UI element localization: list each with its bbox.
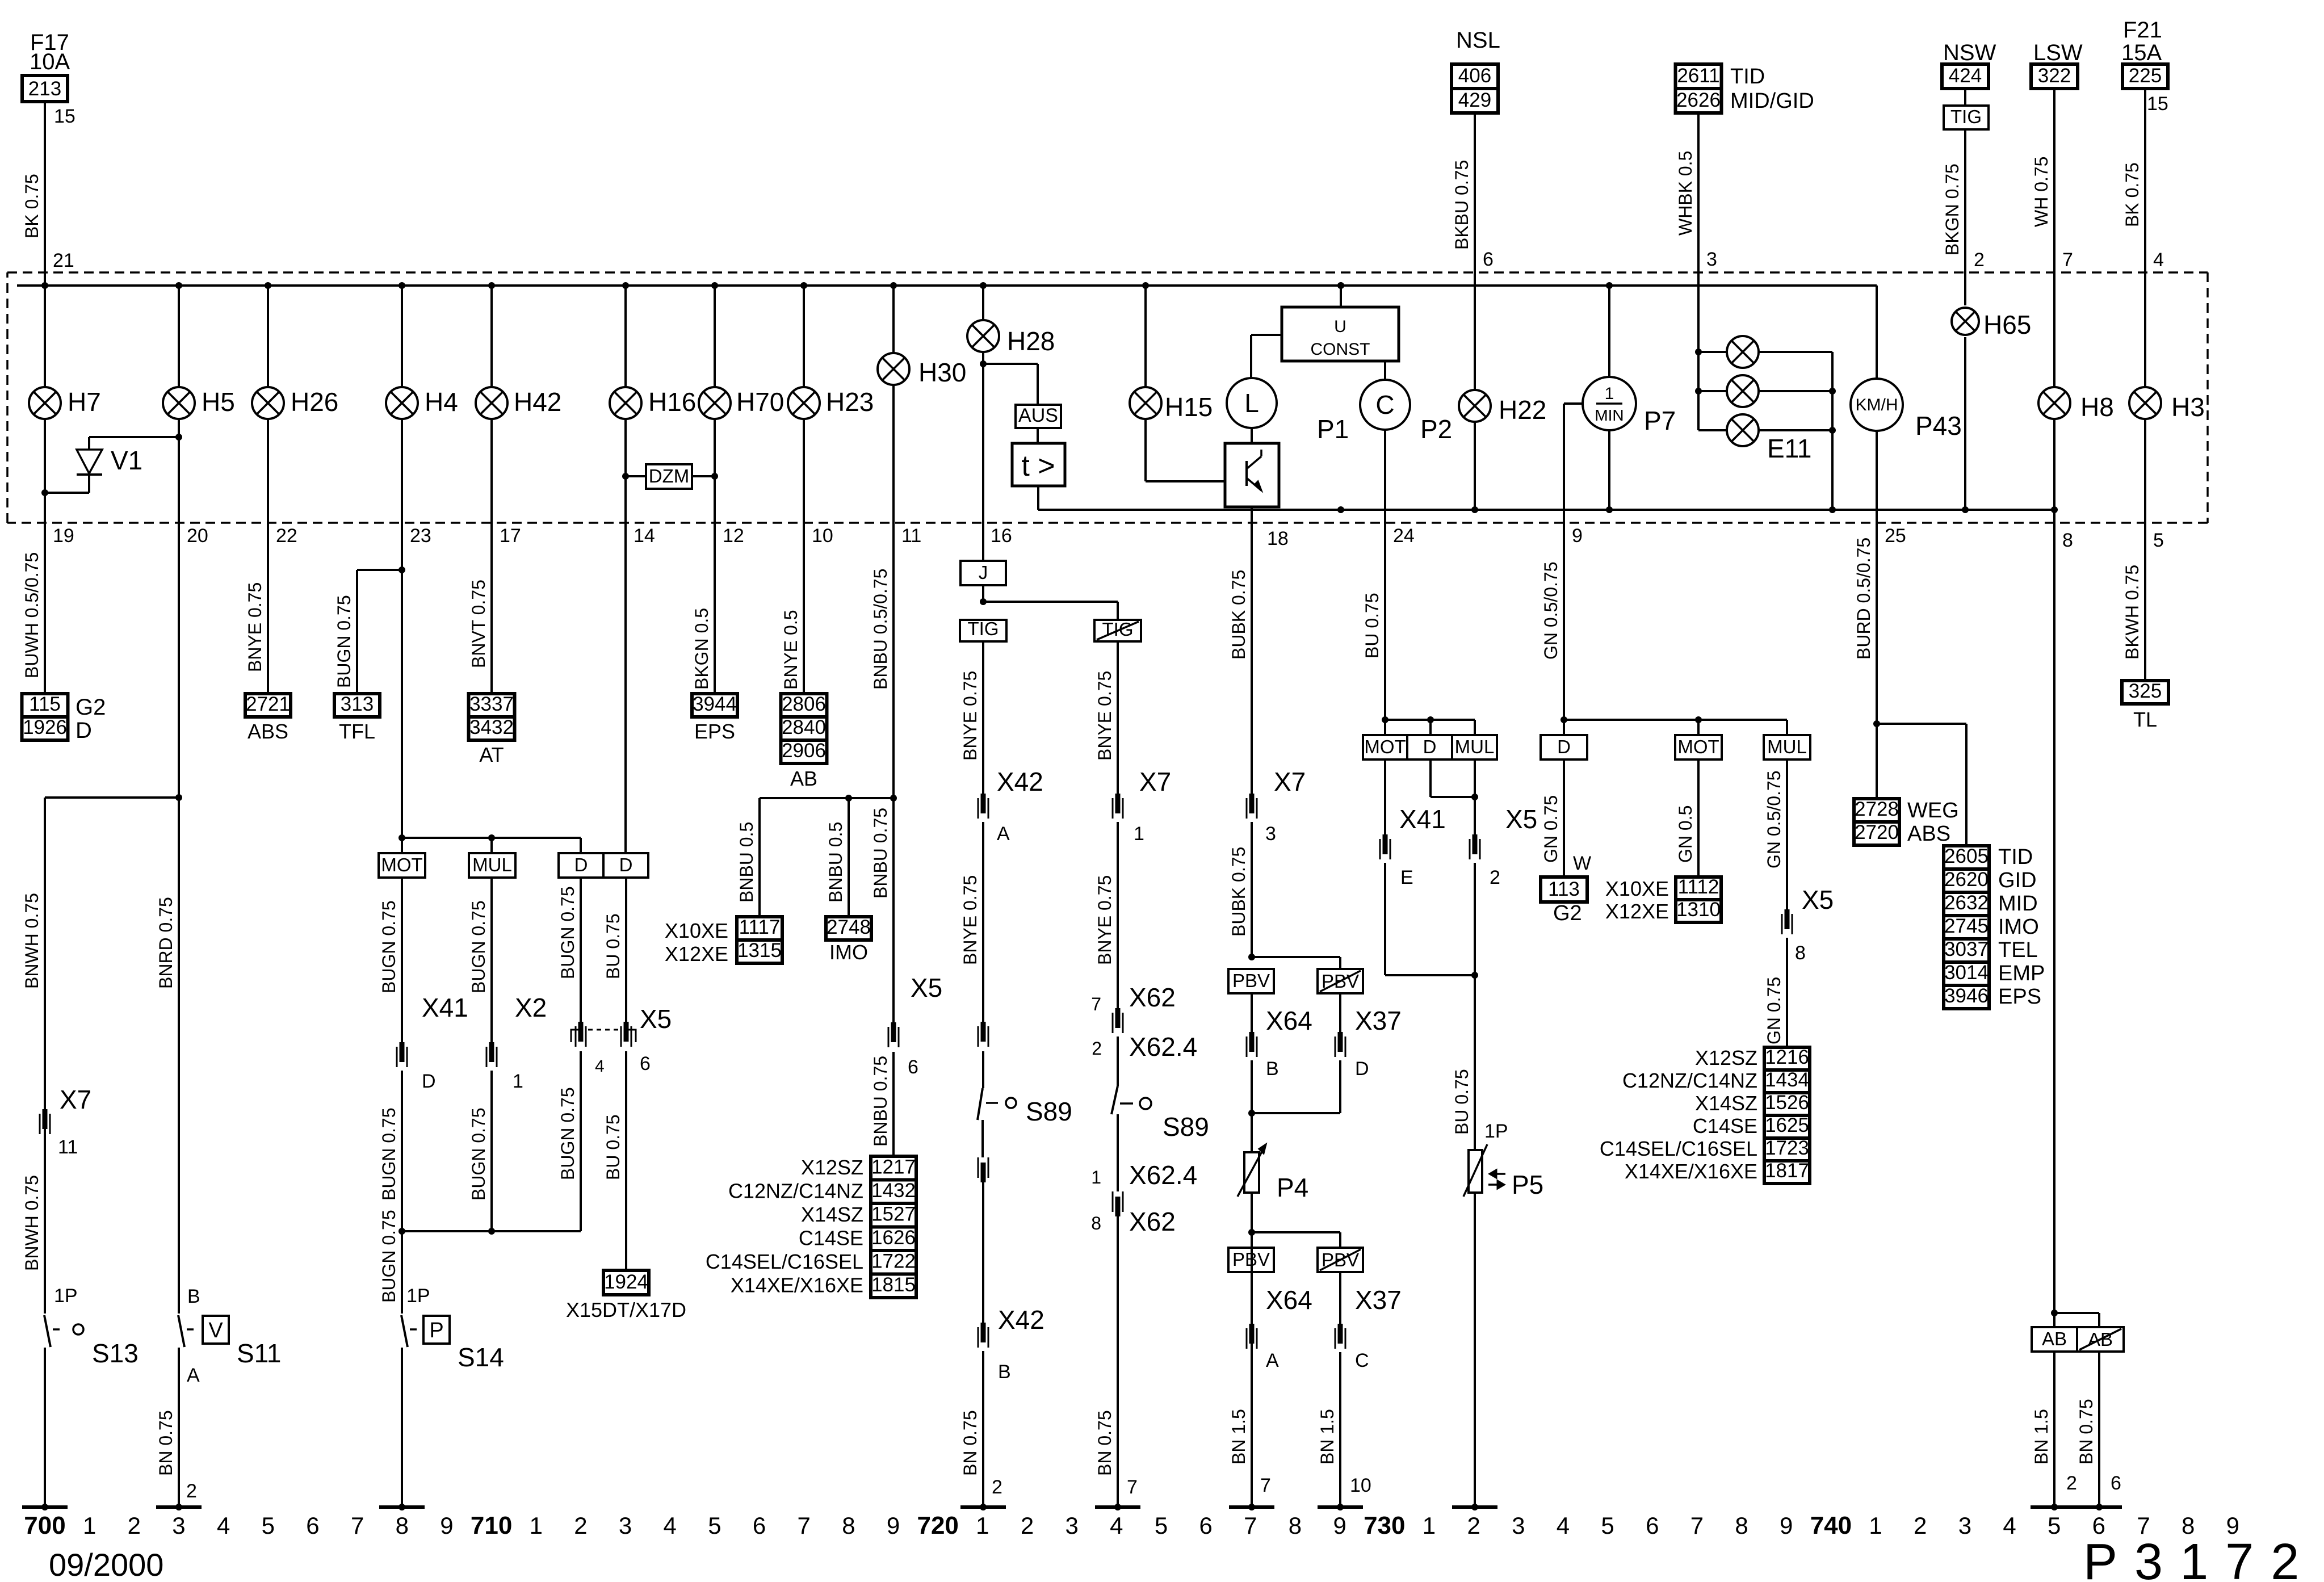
svg-text:16: 16 (991, 525, 1012, 547)
svg-text:6: 6 (306, 1512, 319, 1539)
svg-text:10: 10 (812, 525, 833, 547)
svg-text:1112: 1112 (1678, 876, 1719, 898)
svg-text:MUL: MUL (472, 854, 512, 875)
svg-text:X62.4: X62.4 (1129, 1032, 1197, 1061)
svg-text:7: 7 (2062, 249, 2073, 271)
svg-text:1527: 1527 (871, 1203, 916, 1226)
svg-text:BUGN 0.75: BUGN 0.75 (468, 900, 489, 993)
svg-text:TFL: TFL (339, 720, 375, 743)
svg-text:424: 424 (1949, 65, 1982, 87)
svg-text:S89: S89 (1163, 1112, 1209, 1142)
svg-text:6: 6 (2111, 1472, 2121, 1494)
svg-text:H8: H8 (2080, 392, 2114, 422)
svg-text:7: 7 (1244, 1512, 1257, 1539)
svg-text:H16: H16 (648, 387, 696, 417)
svg-text:WEG: WEG (1907, 799, 1959, 823)
svg-text:3: 3 (1706, 249, 1717, 270)
svg-text:NSW: NSW (1943, 40, 1996, 65)
svg-text:740: 740 (1810, 1512, 1852, 1539)
svg-text:C: C (1355, 1350, 1369, 1371)
svg-text:X41: X41 (1399, 804, 1446, 834)
svg-text:S14: S14 (458, 1342, 504, 1372)
svg-text:B: B (998, 1361, 1011, 1383)
svg-text:6: 6 (753, 1512, 766, 1539)
svg-text:A: A (1266, 1350, 1279, 1371)
svg-text:BNRD 0.75: BNRD 0.75 (156, 897, 176, 989)
svg-text:TIG: TIG (1950, 106, 1982, 127)
svg-text:BNBU 0.5: BNBU 0.5 (736, 822, 757, 903)
svg-text:3: 3 (1512, 1512, 1525, 1539)
svg-text:1626: 1626 (871, 1227, 916, 1249)
svg-text:8: 8 (1289, 1512, 1302, 1539)
svg-text:700: 700 (24, 1512, 65, 1539)
svg-text:BNYE 0.5: BNYE 0.5 (781, 610, 801, 690)
svg-text:5: 5 (1155, 1512, 1168, 1539)
svg-text:2611: 2611 (1677, 65, 1719, 87)
svg-text:X7: X7 (1274, 767, 1306, 796)
svg-text:7: 7 (1690, 1512, 1704, 1539)
svg-text:8: 8 (1735, 1512, 1748, 1539)
svg-text:WHBK 0.5: WHBK 0.5 (1675, 151, 1696, 236)
svg-text:2: 2 (1021, 1512, 1034, 1539)
svg-text:MOT: MOT (381, 854, 422, 875)
svg-text:BNYE 0.75: BNYE 0.75 (1094, 875, 1115, 965)
svg-text:2: 2 (1974, 249, 1985, 271)
svg-text:3: 3 (1265, 823, 1276, 845)
svg-text:BUBK 0.75: BUBK 0.75 (1228, 847, 1249, 937)
svg-text:D: D (1355, 1058, 1369, 1080)
svg-text:3037: 3037 (1944, 938, 1989, 960)
svg-text:11: 11 (901, 525, 921, 547)
svg-text:2: 2 (186, 1480, 197, 1502)
svg-text:BN 1.5: BN 1.5 (1317, 1409, 1337, 1464)
svg-text:X10XE: X10XE (1605, 877, 1669, 900)
svg-text:1315: 1315 (737, 939, 782, 962)
svg-text:2720: 2720 (1855, 821, 1899, 844)
svg-text:23: 23 (410, 525, 431, 547)
svg-text:BNYE 0.75: BNYE 0.75 (960, 875, 980, 965)
svg-text:7: 7 (351, 1512, 364, 1539)
svg-text:H42: H42 (514, 387, 561, 417)
svg-text:1: 1 (1605, 384, 1614, 403)
svg-text:D: D (1557, 736, 1571, 757)
svg-text:4: 4 (1110, 1512, 1123, 1539)
svg-text:C14SEL/C16SEL: C14SEL/C16SEL (706, 1250, 863, 1273)
svg-text:X62: X62 (1129, 983, 1176, 1012)
svg-text:H26: H26 (291, 387, 338, 417)
svg-text:1216: 1216 (1765, 1046, 1809, 1068)
svg-text:1: 1 (513, 1071, 523, 1092)
svg-text:X5: X5 (1802, 885, 1834, 914)
svg-text:X10XE: X10XE (665, 919, 728, 942)
svg-text:15A: 15A (2121, 40, 2162, 65)
svg-text:X14SZ: X14SZ (801, 1203, 863, 1226)
svg-text:1: 1 (530, 1512, 543, 1539)
svg-text:X5: X5 (911, 973, 942, 1002)
svg-text:C12NZ/C14NZ: C12NZ/C14NZ (1622, 1069, 1757, 1092)
svg-text:2: 2 (1467, 1512, 1480, 1539)
svg-text:1817: 1817 (1765, 1160, 1809, 1182)
svg-text:BNYE 0.75: BNYE 0.75 (960, 671, 980, 761)
svg-text:2632: 2632 (1944, 892, 1989, 914)
svg-text:EPS: EPS (694, 720, 735, 743)
svg-text:BU 0.75: BU 0.75 (603, 913, 623, 979)
svg-text:X41: X41 (422, 993, 468, 1022)
svg-text:2748: 2748 (827, 916, 871, 938)
svg-text:6: 6 (1199, 1512, 1212, 1539)
svg-text:AB: AB (2042, 1328, 2067, 1349)
svg-text:1: 1 (1091, 1167, 1101, 1187)
svg-text:24: 24 (1393, 525, 1415, 547)
svg-text:2620: 2620 (1944, 868, 1989, 891)
svg-text:AB: AB (790, 767, 817, 790)
svg-text:4: 4 (664, 1512, 677, 1539)
svg-text:4: 4 (595, 1057, 605, 1076)
svg-text:TL: TL (2133, 708, 2157, 731)
svg-text:1: 1 (83, 1512, 96, 1539)
svg-text:BU 0.75: BU 0.75 (1452, 1069, 1472, 1135)
svg-text:E: E (1400, 867, 1413, 888)
svg-text:2906: 2906 (782, 740, 826, 762)
svg-text:113: 113 (1548, 878, 1580, 900)
svg-text:IMO: IMO (1998, 915, 2039, 939)
svg-text:1: 1 (1134, 823, 1144, 845)
svg-text:C14SEL/C16SEL: C14SEL/C16SEL (1600, 1137, 1757, 1160)
svg-text:7: 7 (1127, 1476, 1138, 1498)
svg-text:2: 2 (1490, 867, 1500, 888)
svg-text:TEL: TEL (1998, 938, 2038, 962)
svg-text:BN 1.5: BN 1.5 (2031, 1409, 2052, 1464)
svg-text:X14SZ: X14SZ (1695, 1092, 1757, 1115)
svg-text:BKBU 0.75: BKBU 0.75 (1452, 160, 1472, 250)
svg-text:2840: 2840 (782, 716, 826, 738)
svg-text:X15DT/X17D: X15DT/X17D (566, 1298, 686, 1321)
svg-text:MOT: MOT (1364, 736, 1406, 757)
svg-text:20: 20 (187, 525, 208, 547)
svg-text:MID/GID: MID/GID (1730, 89, 1814, 113)
svg-text:25: 25 (1885, 525, 1906, 547)
svg-text:X64: X64 (1266, 1006, 1312, 1035)
svg-text:12: 12 (723, 525, 744, 547)
svg-text:BU 0.75: BU 0.75 (1362, 593, 1382, 658)
svg-text:4: 4 (2003, 1512, 2016, 1539)
svg-text:U: U (1334, 317, 1346, 336)
svg-text:X5: X5 (1505, 804, 1537, 834)
svg-text:1722: 1722 (871, 1251, 916, 1273)
svg-text:W: W (1573, 853, 1591, 874)
svg-text:J: J (979, 562, 988, 583)
svg-text:225: 225 (2129, 65, 2162, 87)
svg-text:22: 22 (276, 525, 297, 547)
svg-text:1P: 1P (1484, 1121, 1508, 1142)
svg-text:D: D (422, 1071, 436, 1092)
svg-text:D: D (574, 854, 588, 875)
svg-text:X5: X5 (640, 1004, 672, 1034)
svg-text:2: 2 (1092, 1038, 1102, 1059)
svg-text:15: 15 (54, 106, 75, 127)
svg-text:H5: H5 (202, 387, 235, 417)
svg-text:1P: 1P (406, 1285, 430, 1307)
svg-text:17: 17 (500, 525, 521, 547)
svg-text:P1: P1 (1317, 414, 1349, 444)
svg-text:PBV: PBV (1232, 970, 1270, 991)
svg-text:X12SZ: X12SZ (1695, 1046, 1757, 1069)
svg-text:10: 10 (1350, 1475, 1371, 1496)
svg-text:2806: 2806 (782, 693, 826, 715)
svg-text:MUL: MUL (1455, 736, 1495, 757)
svg-text:X14XE/X16XE: X14XE/X16XE (1625, 1160, 1757, 1183)
svg-text:GN 0.75: GN 0.75 (1541, 795, 1561, 863)
svg-text:P2: P2 (1420, 414, 1452, 444)
svg-text:AUS: AUS (1018, 405, 1058, 426)
svg-text:ABS: ABS (1907, 822, 1950, 846)
svg-text:2745: 2745 (1944, 915, 1989, 937)
svg-text:BN 0.75: BN 0.75 (960, 1410, 980, 1476)
svg-text:BUGN 0.75: BUGN 0.75 (557, 886, 578, 979)
svg-text:X12XE: X12XE (665, 942, 728, 966)
svg-text:3014: 3014 (1944, 962, 1989, 984)
svg-text:X62: X62 (1129, 1207, 1176, 1236)
svg-text:3: 3 (1958, 1512, 1971, 1539)
svg-text:5: 5 (2153, 530, 2164, 551)
svg-text:MOT: MOT (1677, 736, 1719, 757)
svg-text:322: 322 (2038, 65, 2071, 87)
svg-text:D: D (75, 718, 92, 743)
svg-text:C: C (1375, 390, 1394, 419)
svg-text:GID: GID (1998, 868, 2037, 892)
svg-text:PBV: PBV (1232, 1249, 1270, 1270)
svg-text:3432: 3432 (469, 716, 514, 738)
svg-text:X62.4: X62.4 (1129, 1160, 1197, 1190)
svg-text:GN 0.5/0.75: GN 0.5/0.75 (1541, 561, 1561, 660)
svg-text:BN 0.75: BN 0.75 (156, 1410, 176, 1476)
svg-text:EMP: EMP (1998, 962, 2045, 985)
svg-text:14: 14 (634, 525, 655, 547)
svg-text:406: 406 (1458, 65, 1491, 87)
svg-text:V: V (208, 1319, 223, 1342)
svg-text:4: 4 (1557, 1512, 1570, 1539)
svg-text:4: 4 (217, 1512, 230, 1539)
svg-text:1924: 1924 (604, 1271, 648, 1293)
svg-text:H15: H15 (1165, 392, 1213, 422)
svg-text:E11: E11 (1767, 434, 1811, 463)
svg-text:GN 0.75: GN 0.75 (1764, 977, 1784, 1044)
svg-text:3337: 3337 (469, 693, 514, 715)
svg-text:BNBU 0.5/0.75: BNBU 0.5/0.75 (870, 569, 891, 690)
svg-text:t >: t > (1021, 450, 1055, 482)
svg-text:1: 1 (1869, 1512, 1882, 1539)
svg-text:TID: TID (1998, 845, 2033, 869)
svg-text:BNYE 0.75: BNYE 0.75 (245, 582, 265, 672)
svg-text:C12NZ/C14NZ: C12NZ/C14NZ (728, 1180, 863, 1203)
svg-text:1310: 1310 (1676, 899, 1721, 921)
svg-text:TIG: TIG (968, 618, 999, 639)
svg-text:BNBU 0.75: BNBU 0.75 (870, 1056, 891, 1147)
svg-text:LSW: LSW (2033, 40, 2083, 65)
svg-text:BNVT 0.75: BNVT 0.75 (468, 580, 489, 668)
svg-text:1117: 1117 (739, 916, 781, 938)
svg-text:8: 8 (842, 1512, 855, 1539)
svg-text:10A: 10A (30, 49, 70, 74)
svg-text:2721: 2721 (246, 693, 290, 715)
svg-text:X64: X64 (1266, 1285, 1312, 1315)
svg-text:2: 2 (128, 1512, 141, 1539)
svg-text:X2: X2 (515, 993, 547, 1022)
svg-text:2605: 2605 (1944, 845, 1989, 867)
svg-text:B: B (1266, 1058, 1279, 1080)
svg-text:BN 1.5: BN 1.5 (1228, 1409, 1249, 1464)
svg-text:B: B (187, 1286, 200, 1307)
svg-text:L: L (1244, 388, 1259, 418)
svg-text:BK 0.75: BK 0.75 (22, 174, 42, 238)
svg-text:BUGN 0.75: BUGN 0.75 (379, 1210, 399, 1303)
svg-text:BK 0.75: BK 0.75 (2122, 162, 2142, 227)
svg-text:X42: X42 (997, 767, 1043, 796)
svg-text:3: 3 (619, 1512, 632, 1539)
svg-text:19: 19 (53, 525, 74, 547)
svg-text:18: 18 (1267, 528, 1289, 549)
svg-text:BUGN 0.75: BUGN 0.75 (468, 1107, 489, 1201)
svg-text:1432: 1432 (871, 1180, 916, 1202)
svg-text:BNWH 0.75: BNWH 0.75 (22, 1175, 42, 1271)
svg-text:6: 6 (640, 1053, 651, 1075)
svg-text:X7: X7 (60, 1085, 91, 1114)
svg-text:MIN: MIN (1595, 406, 1624, 424)
svg-text:5: 5 (708, 1512, 721, 1539)
svg-text:X37: X37 (1355, 1285, 1402, 1315)
svg-text:X12XE: X12XE (1605, 900, 1669, 923)
svg-text:H7: H7 (68, 387, 101, 417)
svg-text:9: 9 (1333, 1512, 1346, 1539)
svg-text:BUGN 0.75: BUGN 0.75 (379, 1107, 399, 1201)
svg-text:BN 0.75: BN 0.75 (2076, 1399, 2096, 1464)
svg-text:S89: S89 (1026, 1097, 1072, 1126)
svg-text:7: 7 (798, 1512, 811, 1539)
svg-text:2: 2 (574, 1512, 587, 1539)
svg-text:AT: AT (479, 743, 504, 766)
svg-text:KM/H: KM/H (1856, 396, 1898, 414)
svg-text:09/2000: 09/2000 (49, 1547, 163, 1582)
svg-text:D: D (1423, 736, 1437, 757)
svg-text:BURD 0.5/0.75: BURD 0.5/0.75 (1853, 538, 1874, 660)
svg-text:1526: 1526 (1765, 1092, 1809, 1114)
svg-text:720: 720 (917, 1512, 958, 1539)
svg-text:H65: H65 (1983, 310, 2031, 339)
svg-text:MID: MID (1998, 892, 2038, 916)
svg-text:BN 0.75: BN 0.75 (1094, 1410, 1115, 1476)
svg-text:H4: H4 (425, 387, 458, 417)
svg-text:3944: 3944 (693, 693, 737, 715)
svg-text:2: 2 (992, 1476, 1002, 1498)
svg-text:GN 0.5: GN 0.5 (1675, 805, 1696, 863)
svg-text:P3172: P3172 (2083, 1534, 2316, 1582)
svg-text:9: 9 (1780, 1512, 1793, 1539)
svg-text:BUBK 0.75: BUBK 0.75 (1228, 570, 1249, 660)
svg-text:5: 5 (2048, 1512, 2061, 1539)
svg-text:313: 313 (341, 693, 374, 715)
svg-text:1926: 1926 (23, 716, 67, 738)
svg-text:TIG: TIG (1102, 619, 1134, 640)
svg-text:9: 9 (887, 1512, 900, 1539)
svg-text:P4: P4 (1277, 1173, 1308, 1202)
svg-text:1723: 1723 (1765, 1137, 1809, 1159)
svg-text:C14SE: C14SE (1693, 1114, 1757, 1138)
svg-text:6: 6 (1483, 249, 1494, 270)
svg-text:BUGN 0.75: BUGN 0.75 (379, 900, 399, 993)
svg-text:7: 7 (1260, 1475, 1271, 1496)
svg-text:X42: X42 (998, 1305, 1044, 1335)
svg-text:8: 8 (396, 1512, 409, 1539)
svg-text:IMO: IMO (829, 941, 868, 964)
svg-text:P: P (429, 1319, 443, 1342)
svg-text:X14XE/X16XE: X14XE/X16XE (731, 1274, 863, 1297)
svg-text:X37: X37 (1355, 1006, 1402, 1035)
svg-text:BUWH 0.5/0.75: BUWH 0.5/0.75 (22, 552, 42, 678)
svg-text:NSL: NSL (1456, 28, 1500, 53)
svg-text:A: A (187, 1365, 200, 1386)
svg-text:BKWH 0.75: BKWH 0.75 (2122, 565, 2142, 660)
svg-text:BNBU 0.5: BNBU 0.5 (825, 822, 846, 903)
svg-text:1: 1 (1423, 1512, 1436, 1539)
svg-text:6: 6 (1646, 1512, 1659, 1539)
svg-text:21: 21 (53, 250, 74, 271)
svg-text:2626: 2626 (1676, 89, 1721, 111)
svg-text:9: 9 (440, 1512, 453, 1539)
svg-text:3946: 3946 (1944, 985, 1989, 1007)
svg-text:D: D (619, 854, 633, 875)
svg-text:3: 3 (1065, 1512, 1079, 1539)
svg-text:8: 8 (1795, 942, 1806, 964)
svg-text:9: 9 (1572, 525, 1583, 547)
svg-text:CONST: CONST (1311, 340, 1370, 359)
svg-text:S13: S13 (92, 1338, 139, 1368)
svg-text:1625: 1625 (1765, 1114, 1809, 1136)
svg-text:X7: X7 (1139, 767, 1171, 796)
svg-text:5: 5 (1601, 1512, 1614, 1539)
svg-text:1434: 1434 (1765, 1069, 1809, 1091)
svg-text:BUGN 0.75: BUGN 0.75 (557, 1087, 578, 1180)
svg-text:BU 0.75: BU 0.75 (603, 1114, 623, 1180)
svg-text:429: 429 (1458, 89, 1491, 111)
svg-text:ABS: ABS (247, 720, 288, 743)
svg-text:BKGN 0.5: BKGN 0.5 (691, 608, 712, 690)
svg-text:4: 4 (2153, 249, 2164, 271)
svg-text:TID: TID (1730, 65, 1765, 89)
svg-text:WH 0.75: WH 0.75 (2031, 157, 2052, 227)
svg-text:G2: G2 (75, 695, 106, 720)
svg-text:213: 213 (28, 78, 61, 100)
svg-text:5: 5 (262, 1512, 275, 1539)
svg-text:710: 710 (471, 1512, 512, 1539)
svg-text:BNYE 0.75: BNYE 0.75 (1094, 671, 1115, 761)
svg-text:EPS: EPS (1998, 985, 2041, 1009)
svg-text:GN 0.5/0.75: GN 0.5/0.75 (1764, 770, 1784, 868)
svg-text:H30: H30 (918, 358, 966, 387)
svg-text:S11: S11 (237, 1338, 281, 1368)
svg-text:P5: P5 (1512, 1170, 1543, 1199)
svg-text:G2: G2 (1553, 901, 1582, 925)
svg-text:15: 15 (2147, 93, 2168, 115)
svg-text:BKGN 0.75: BKGN 0.75 (1942, 163, 1962, 255)
svg-text:F21: F21 (2123, 18, 2162, 43)
svg-text:MUL: MUL (1767, 736, 1807, 757)
svg-text:BNBU 0.75: BNBU 0.75 (870, 808, 891, 899)
svg-text:BNWH 0.75: BNWH 0.75 (22, 893, 42, 989)
svg-text:H70: H70 (736, 387, 784, 417)
svg-text:2728: 2728 (1855, 798, 1899, 820)
svg-text:DZM: DZM (649, 465, 689, 486)
svg-text:1P: 1P (54, 1285, 78, 1307)
